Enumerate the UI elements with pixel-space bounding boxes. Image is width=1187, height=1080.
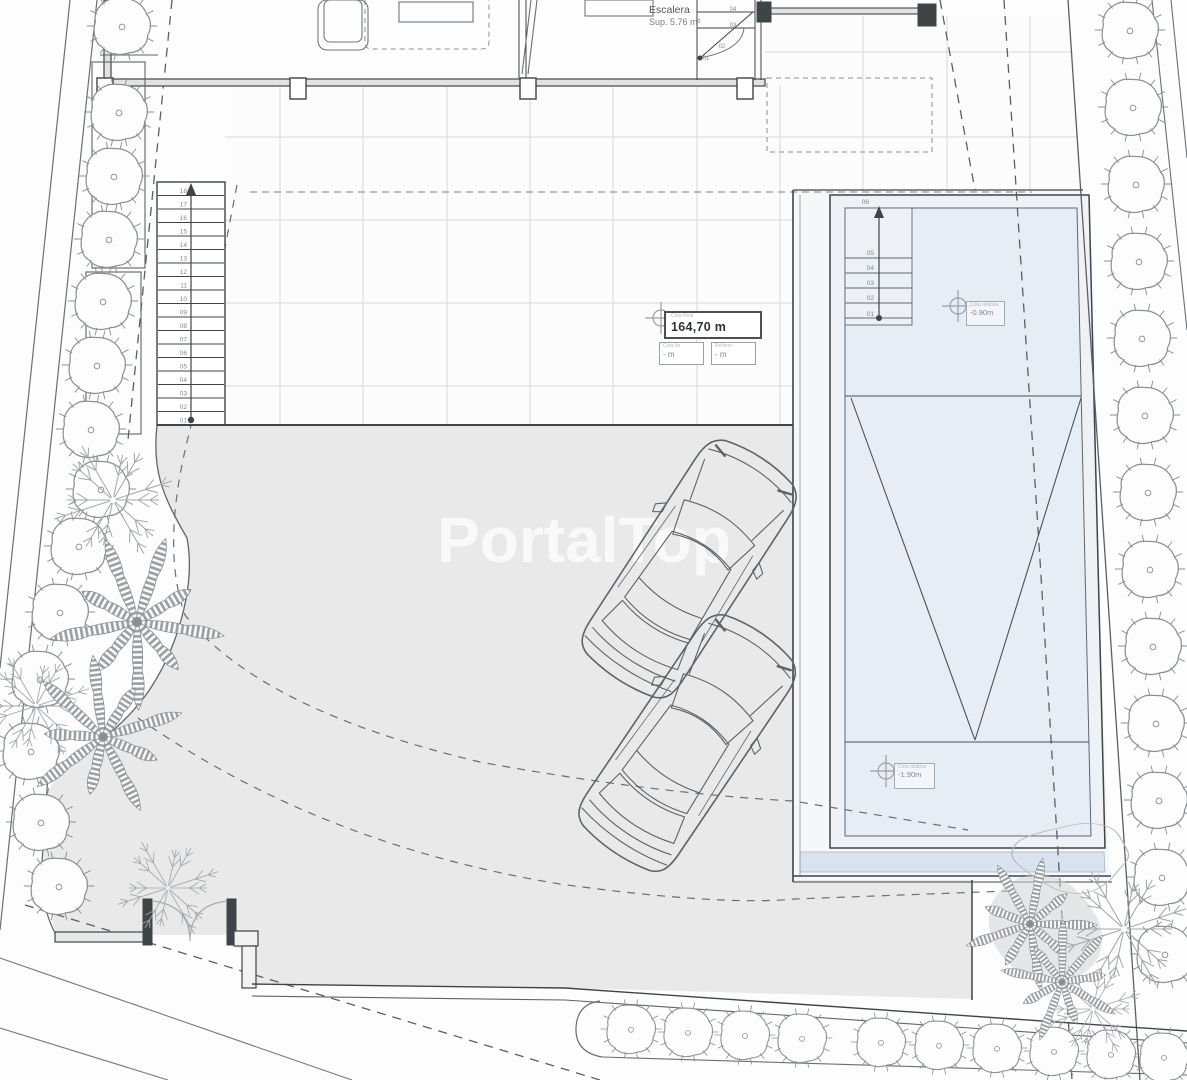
area-summary-table: Cota Real 164,70 m Cota fin - m Relleno …: [659, 311, 769, 365]
stair-number: 02: [719, 44, 726, 50]
bush-icon: [1118, 612, 1187, 681]
stair-number: 11: [180, 283, 187, 290]
area-total-value: 164,70 m: [671, 320, 755, 334]
bush-icon: [1095, 0, 1165, 64]
stair-number: 02: [180, 404, 188, 411]
bush-icon: [1121, 689, 1187, 758]
stair-number: 09: [180, 310, 188, 317]
stair-number: 13: [180, 256, 188, 263]
bush-icon: [1098, 73, 1168, 142]
level-marker-value: -0.90m: [970, 308, 1001, 318]
stair-number: 08: [180, 323, 188, 330]
stair-number: 04: [180, 377, 188, 384]
bush-icon: [56, 395, 126, 464]
entry-stair-detail: [697, 0, 755, 80]
escalera-title: Escalera: [649, 4, 701, 16]
area-subcell-1: Cota fin - m: [659, 342, 704, 365]
stair-number: 18: [180, 188, 188, 195]
bush-icon: [1115, 535, 1185, 604]
stair-number: 03: [180, 391, 188, 398]
bush-icon: [79, 142, 149, 211]
area-subcell-2-value: - m: [715, 350, 752, 359]
bush-icon: [1113, 458, 1183, 527]
gate-post: [143, 899, 152, 945]
bush-icon: [1127, 843, 1187, 912]
site-plan-drawing: PortalTop: [0, 0, 1187, 1080]
bush-icon: [68, 267, 138, 336]
bush-icon: [1107, 304, 1177, 373]
stair-number: 05: [867, 250, 875, 257]
stair-number: 12: [180, 269, 188, 276]
bush-icon: [1124, 766, 1187, 835]
area-subcell-1-value: - m: [663, 350, 700, 359]
stair-number: 17: [180, 202, 188, 209]
level-marker-value: -1.90m: [898, 770, 931, 780]
area-total-box: Cota Real 164,70 m: [664, 311, 762, 339]
level-marker-minus-190: Cota relativa -1.90m: [894, 763, 935, 789]
stair-number: 07: [180, 337, 188, 344]
bush-icon: [74, 205, 144, 274]
watermark: PortalTop: [437, 504, 731, 576]
stair-number: 06: [180, 350, 188, 357]
stair-number: 16: [180, 215, 188, 222]
bush-icon: [44, 512, 114, 581]
furniture: [318, 0, 653, 50]
area-subcell-2: Relleno - m: [711, 342, 756, 365]
stair-number: 15: [180, 229, 188, 236]
site-plan-page: PortalTop: [0, 0, 1187, 1080]
escalera-label: Escalera Sup. 5.76 m²: [649, 4, 701, 27]
hedge-bush-icon: [772, 1008, 833, 1067]
hedge-bush-icon: [1134, 1027, 1187, 1080]
stair-number: 10: [180, 296, 188, 303]
stair-number: 01: [180, 418, 188, 425]
hedge-bush-icon: [851, 1012, 912, 1071]
stair-number: 01: [703, 56, 710, 62]
bush-icon: [1110, 381, 1180, 450]
bush-icon: [84, 78, 154, 147]
stair-number: 05: [180, 364, 188, 371]
hedge-bush-icon: [658, 1002, 719, 1061]
stair-number: 14: [180, 242, 188, 249]
escalera-area: Sup. 5.76 m²: [649, 17, 701, 27]
level-marker-minus-090: Cota relativa -0.90m: [966, 301, 1005, 326]
stair-number: 01: [867, 311, 875, 318]
stair-number: 04: [730, 7, 737, 13]
stair-number: 04: [867, 265, 875, 272]
stair-number: 03: [867, 280, 875, 287]
hedge-bush-icon: [601, 999, 662, 1058]
bush-icon: [87, 0, 157, 60]
bush-icon: [1101, 150, 1171, 219]
stair-number: 02: [867, 295, 875, 302]
table: [399, 2, 473, 22]
bush-icon: [1104, 227, 1174, 296]
stair-number: 06: [862, 199, 870, 206]
cabinet: [585, 0, 653, 16]
stair-number: 03: [730, 23, 737, 29]
bush-icon: [62, 331, 132, 400]
